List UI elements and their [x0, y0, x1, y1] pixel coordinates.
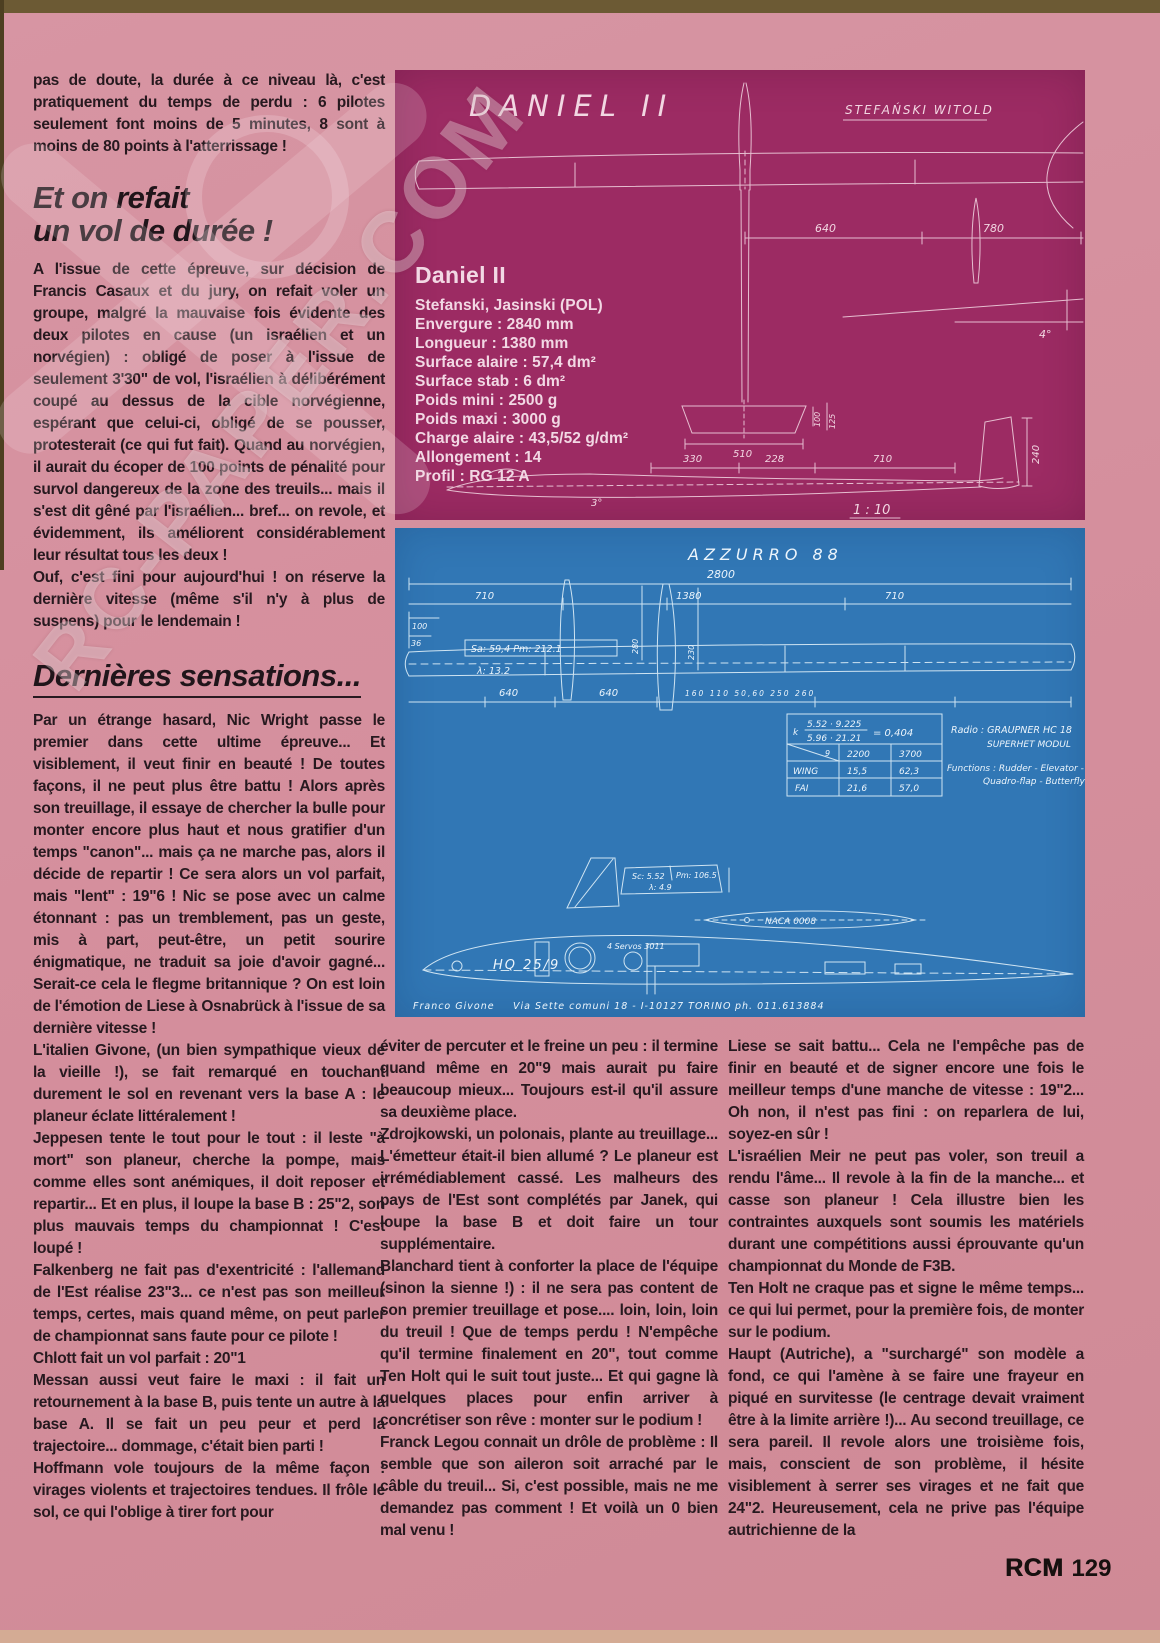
daniel-sketch-title: DANIEL II	[469, 89, 674, 123]
table-row-fai-v2: 57,0	[899, 784, 919, 794]
table-head-w1: 2200	[847, 750, 870, 760]
paragraph: Hoffmann vole toujours de la même façon …	[33, 1458, 385, 1524]
paragraph: Ouf, c'est fini pour aujourd'hui ! on ré…	[33, 567, 385, 633]
paragraph: Messan aussi veut faire le maxi : il fai…	[33, 1370, 385, 1458]
dim-label-span: 2800	[707, 568, 735, 581]
naca-label: NACA 0008	[765, 917, 816, 927]
dim-label-228: 228	[765, 454, 784, 465]
section-heading-duree: Et on refaitun vol de durée !	[33, 181, 385, 247]
spec-surface-stab: Surface stab : 6 dm²	[415, 372, 675, 391]
stab-lambda-label: λ: 4.9	[648, 883, 672, 892]
daniel-spec-block: Daniel II Stefanski, Jasinski (POL) Enve…	[415, 262, 675, 486]
paragraph: Ten Holt ne craque pas et signe le même …	[728, 1278, 1084, 1344]
dim-label-100: 100	[813, 412, 822, 427]
page-footer: RCM129	[1005, 1554, 1111, 1583]
wing-lambda-label: λ: 13.2	[476, 666, 510, 677]
wing-area-label: Sa: 59,4 Pm: 212.1	[471, 644, 562, 655]
dim-label-125: 125	[828, 414, 837, 429]
dim-label-100: 100	[412, 622, 427, 631]
stab-pm-label: Pm: 106.5	[676, 871, 717, 880]
table-k-label: k	[793, 728, 799, 738]
paragraph: Jeppesen tente le tout pour le tout : il…	[33, 1128, 385, 1260]
functions-label: Functions : Rudder - Elevator -	[947, 764, 1084, 774]
credit-phone: ph. 011.613884	[734, 1001, 825, 1012]
left-column: pas de doute, la durée à ce niveau là, c…	[33, 70, 385, 1524]
spec-longueur: Longueur : 1380 mm	[415, 334, 675, 353]
table-k-result: = 0,404	[873, 728, 913, 739]
dim-label-780: 780	[983, 222, 1004, 235]
dim-label-710: 710	[873, 454, 892, 465]
paragraph: A l'issue de cette épreuve, sur décision…	[33, 259, 385, 567]
dim-label-240: 240	[1031, 445, 1042, 464]
angle-label-3deg: 3°	[591, 498, 602, 509]
radio-label: Radio : GRAUPNER HC 18	[951, 725, 1072, 736]
dim-label-640b: 640	[599, 688, 618, 699]
credit-address: Via Sette comuni 18 - I-10127 TORINO	[513, 1001, 731, 1012]
paragraph: Franck Legou connait un drôle de problèm…	[380, 1432, 718, 1542]
azzurro-blueprint-panel: AZZURRO 88 2800 710 1380 710 100 36 280 …	[395, 528, 1085, 1017]
dim-label-710-left: 710	[475, 591, 494, 602]
spec-envergure: Envergure : 2840 mm	[415, 315, 675, 334]
right-column: Liese se sait battu... Cela ne l'empêche…	[728, 1036, 1084, 1542]
table-row-wing-label: WING	[793, 767, 818, 777]
table-k-num: 5.52 · 9.225	[807, 720, 862, 730]
table-row-wing-v2: 62,3	[899, 767, 919, 777]
dim-small-row: 160 110 50,60 250 260	[685, 689, 815, 698]
magazine-page: pas de doute, la durée à ce niveau là, c…	[0, 0, 1160, 1643]
model-team: Stefanski, Jasinski (POL)	[415, 296, 675, 315]
table-k-den: 5.96 · 21.21	[807, 734, 861, 744]
dim-label-230: 230	[687, 645, 696, 660]
dim-label-330: 330	[683, 454, 702, 465]
dim-label-640: 640	[815, 222, 836, 235]
middle-column: éviter de percuter et le freine un peu :…	[380, 1036, 718, 1542]
paragraph: Falkenberg ne fait pas d'exentricité : l…	[33, 1260, 385, 1348]
scan-edge-top	[0, 0, 1160, 13]
scan-edge-left	[0, 0, 4, 570]
dim-label-1380: 1380	[676, 591, 701, 602]
stab-sc-label: Sc: 5.52	[632, 872, 665, 881]
dim-label-710-right: 710	[885, 591, 904, 602]
azzurro-sketch-title: AZZURRO 88	[687, 545, 843, 564]
table-row-fai-v1: 21,6	[847, 784, 867, 794]
paragraph: Par un étrange hasard, Nic Wright passe …	[33, 710, 385, 1040]
dim-label-510: 510	[733, 449, 752, 460]
paragraph: Zdrojkowski, un polonais, plante au treu…	[380, 1124, 718, 1256]
scan-edge-bottom	[0, 1630, 1160, 1643]
spec-charge-alaire: Charge alaire : 43,5/52 g/dm²	[415, 429, 675, 448]
radio-label-2: SUPERHET MODUL	[987, 740, 1071, 750]
airfoil-label: HQ 25/9	[493, 958, 560, 973]
table-head-diag: 9	[825, 749, 830, 758]
paragraph: pas de doute, la durée à ce niveau là, c…	[33, 70, 385, 158]
magazine-logo: RCM	[1005, 1554, 1063, 1582]
functions-label-2: Quadro-flap - Butterfly	[983, 777, 1085, 787]
model-name: Daniel II	[415, 262, 675, 289]
servos-label: 4 Servos 3011	[607, 942, 665, 951]
angle-label-4deg: 4°	[1039, 328, 1052, 341]
spec-surface-alaire: Surface alaire : 57,4 dm²	[415, 353, 675, 372]
section-heading-sensations: Dernières sensations...	[33, 659, 361, 698]
spec-poids-mini: Poids mini : 2500 g	[415, 391, 675, 410]
dim-label-280: 280	[631, 639, 640, 654]
azzurro-drawing: AZZURRO 88 2800 710 1380 710 100 36 280 …	[395, 528, 1085, 1017]
spec-allongement: Allongement : 14	[415, 448, 675, 467]
scale-label: 1 : 10	[853, 503, 890, 518]
page-number: 129	[1071, 1555, 1111, 1582]
daniel-designer-label: STEFAŃSKI WITOLD	[845, 102, 994, 117]
dim-label-640a: 640	[499, 688, 518, 699]
paragraph: L'italien Givone, (un bien sympathique v…	[33, 1040, 385, 1128]
dim-label-36: 36	[411, 639, 421, 648]
table-row-fai-label: FAI	[795, 784, 809, 794]
daniel-blueprint-panel: DANIEL II STEFAŃSKI WITOLD 640 780 4° 51…	[395, 70, 1085, 520]
spec-poids-maxi: Poids maxi : 3000 g	[415, 410, 675, 429]
table-head-w2: 3700	[899, 750, 922, 760]
paragraph: Chlott fait un vol parfait : 20"1	[33, 1348, 385, 1370]
credit-name: Franco Givone	[413, 1001, 495, 1012]
paragraph: Haupt (Autriche), a "surchargé" son modè…	[728, 1344, 1084, 1542]
paragraph: Blanchard tient à conforter la place de …	[380, 1256, 718, 1432]
spec-profil: Profil : RG 12 A	[415, 467, 675, 486]
paragraph: Liese se sait battu... Cela ne l'empêche…	[728, 1036, 1084, 1146]
paragraph: éviter de percuter et le freine un peu :…	[380, 1036, 718, 1124]
paragraph: L'israélien Meir ne peut pas voler, son …	[728, 1146, 1084, 1278]
table-row-wing-v1: 15,5	[847, 767, 867, 777]
